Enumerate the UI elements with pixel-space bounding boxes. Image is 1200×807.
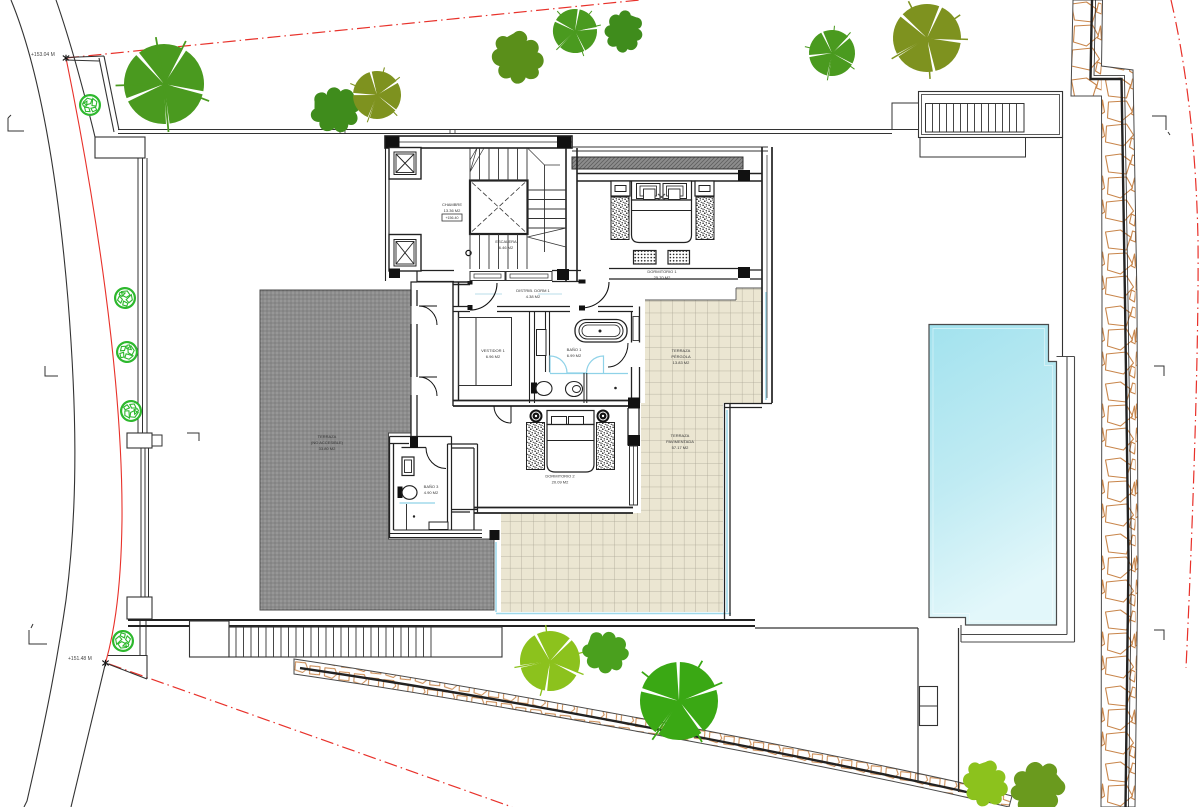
svg-text:TERRAZA: TERRAZA <box>318 434 337 439</box>
svg-text:DORMITORIO 2: DORMITORIO 2 <box>545 474 575 479</box>
svg-text:20.09 M2: 20.09 M2 <box>552 480 569 485</box>
svg-text:13.83 M2: 13.83 M2 <box>673 360 690 365</box>
svg-text:+153.04 M: +153.04 M <box>31 52 55 58</box>
svg-text:4.38 M2: 4.38 M2 <box>526 294 541 299</box>
svg-text:6.46 M2: 6.46 M2 <box>499 245 514 250</box>
svg-text:33.80 M2: 33.80 M2 <box>319 446 336 451</box>
svg-text:6.96 M2: 6.96 M2 <box>486 354 501 359</box>
svg-text:+151.48 M: +151.48 M <box>68 656 92 662</box>
svg-text:25.70 M2: 25.70 M2 <box>654 275 671 280</box>
svg-text:BAÑO 3: BAÑO 3 <box>424 484 439 489</box>
svg-text:4.90 M2: 4.90 M2 <box>424 490 439 495</box>
svg-text:(NO ACCESIBLE): (NO ACCESIBLE) <box>311 440 344 445</box>
svg-text:ESCALERA: ESCALERA <box>495 239 517 244</box>
svg-text:13.36 M2: 13.36 M2 <box>444 208 461 213</box>
svg-text:57.17 M2: 57.17 M2 <box>672 445 689 450</box>
svg-text:CHAMBRE: CHAMBRE <box>442 202 462 207</box>
svg-text:BAÑO 1: BAÑO 1 <box>567 347 582 352</box>
svg-text:PAVIMENTADA: PAVIMENTADA <box>666 439 694 444</box>
svg-text:DORMITORIO 1: DORMITORIO 1 <box>647 269 677 274</box>
svg-text:TERRAZA: TERRAZA <box>671 433 690 438</box>
svg-text:TERRAZA: TERRAZA <box>672 348 691 353</box>
svg-text:VESTIDOR 1: VESTIDOR 1 <box>481 348 506 353</box>
svg-text:DISTRIB. DORM 1: DISTRIB. DORM 1 <box>516 288 550 293</box>
svg-text:PÉRGOLA: PÉRGOLA <box>671 354 691 359</box>
svg-text:6.99 M2: 6.99 M2 <box>567 353 582 358</box>
svg-text:+156.40: +156.40 <box>445 216 458 220</box>
